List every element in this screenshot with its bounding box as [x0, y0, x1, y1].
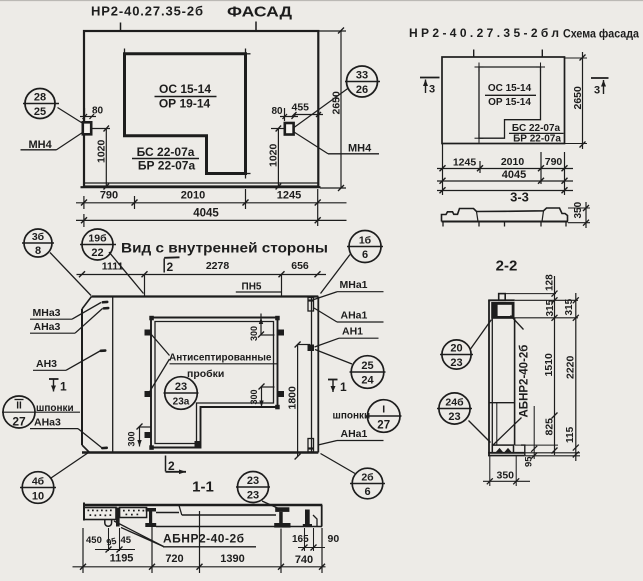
svg-text:шпонки: шпонки: [333, 411, 371, 422]
svg-text:24б: 24б: [445, 397, 464, 409]
svg-text:3-3: 3-3: [510, 190, 529, 205]
svg-text:825: 825: [544, 418, 556, 436]
svg-text:ОС 15-14: ОС 15-14: [159, 82, 211, 96]
svg-text:1-1: 1-1: [192, 479, 214, 496]
svg-text:23а: 23а: [173, 397, 190, 408]
svg-text:26: 26: [356, 84, 368, 96]
svg-text:1800: 1800: [287, 386, 299, 410]
svg-text:1020: 1020: [268, 143, 280, 167]
svg-text:ОС 15-14: ОС 15-14: [488, 83, 532, 94]
svg-text:1020: 1020: [96, 139, 108, 163]
svg-text:23: 23: [175, 381, 187, 393]
svg-text:315: 315: [545, 299, 556, 316]
svg-text:20: 20: [450, 343, 462, 355]
svg-text:1195: 1195: [110, 553, 134, 565]
svg-text:ФАСАД: ФАСАД: [227, 4, 292, 21]
svg-text:2650: 2650: [572, 86, 584, 110]
svg-text:720: 720: [165, 553, 183, 565]
svg-text:Антисептированные: Антисептированные: [169, 353, 272, 364]
svg-text:25: 25: [34, 106, 46, 118]
svg-text:1245: 1245: [277, 190, 301, 202]
svg-text:1: 1: [340, 380, 347, 394]
svg-text:2010: 2010: [181, 190, 205, 202]
svg-text:2: 2: [168, 459, 175, 473]
svg-text:АНа3: АНа3: [34, 417, 61, 429]
svg-text:4045: 4045: [193, 208, 219, 220]
svg-text:23: 23: [450, 357, 462, 369]
svg-text:2278: 2278: [206, 260, 230, 272]
svg-text:МН4: МН4: [348, 143, 372, 155]
svg-text:АН1: АН1: [342, 326, 363, 338]
svg-text:2220: 2220: [565, 355, 577, 379]
svg-text:6: 6: [362, 249, 368, 261]
svg-text:128: 128: [545, 274, 556, 291]
svg-text:656: 656: [291, 260, 309, 272]
svg-text:Вид с внутренней стороны: Вид с внутренней стороны: [121, 240, 328, 256]
svg-text:АНа1: АНа1: [341, 428, 368, 440]
svg-text:23: 23: [448, 411, 460, 423]
svg-text:пробки: пробки: [187, 368, 224, 380]
svg-text:1510: 1510: [543, 353, 555, 377]
svg-text:95: 95: [524, 456, 535, 467]
svg-text:300: 300: [249, 326, 259, 341]
svg-text:22: 22: [91, 247, 103, 259]
svg-text:БР 22-07а: БР 22-07а: [513, 133, 561, 144]
svg-text:ОР 15-14: ОР 15-14: [488, 97, 531, 108]
svg-text:95: 95: [105, 536, 117, 548]
svg-text:БР 22-07а: БР 22-07а: [138, 158, 196, 172]
svg-text:1245: 1245: [453, 157, 477, 169]
svg-text:6: 6: [364, 486, 370, 498]
svg-text:165: 165: [292, 534, 309, 545]
svg-text:115: 115: [565, 426, 576, 443]
svg-text:II: II: [16, 401, 22, 412]
svg-text:450: 450: [86, 535, 102, 546]
svg-text:300: 300: [127, 431, 137, 446]
svg-text:27: 27: [377, 420, 390, 432]
svg-text:1390: 1390: [220, 553, 244, 565]
svg-text:350: 350: [497, 470, 515, 482]
svg-text:8: 8: [35, 245, 41, 257]
svg-text:2-2: 2-2: [496, 258, 518, 275]
svg-text:АНа3: АНа3: [34, 321, 61, 333]
svg-text:МНа1: МНа1: [340, 279, 368, 291]
svg-text:3: 3: [594, 85, 600, 97]
svg-text:1б: 1б: [359, 235, 372, 247]
svg-text:27: 27: [12, 415, 26, 429]
svg-text:19б: 19б: [88, 233, 107, 245]
svg-text:350: 350: [573, 201, 584, 218]
svg-text:315: 315: [564, 298, 575, 315]
svg-text:НР2-40.27.35-2б: НР2-40.27.35-2б: [91, 4, 203, 19]
svg-text:1: 1: [60, 380, 67, 394]
svg-text:23: 23: [247, 475, 259, 487]
svg-text:23: 23: [247, 490, 259, 502]
svg-text:300: 300: [249, 389, 259, 404]
svg-text:25: 25: [361, 360, 373, 372]
svg-text:790: 790: [545, 156, 563, 168]
svg-text:2650: 2650: [331, 91, 343, 115]
svg-text:АБНР2-40-2б: АБНР2-40-2б: [519, 345, 531, 418]
svg-text:28: 28: [34, 92, 46, 104]
svg-text:2010: 2010: [501, 156, 525, 168]
svg-text:740: 740: [295, 554, 313, 566]
svg-text:90: 90: [328, 533, 340, 545]
svg-text:4б: 4б: [32, 476, 45, 488]
svg-text:455: 455: [292, 102, 310, 114]
svg-text:1111: 1111: [102, 261, 124, 273]
svg-text:МНа3: МНа3: [33, 307, 61, 319]
svg-text:АН3: АН3: [36, 358, 57, 370]
svg-text:2б: 2б: [361, 472, 374, 484]
svg-text:I: I: [382, 404, 385, 416]
svg-text:790: 790: [100, 190, 118, 202]
svg-text:10: 10: [32, 491, 44, 503]
svg-text:4045: 4045: [502, 169, 526, 181]
svg-text:80: 80: [272, 106, 284, 117]
svg-text:3: 3: [429, 84, 435, 96]
svg-text:33: 33: [356, 70, 368, 82]
svg-text:Схема фасада: Схема фасада: [563, 27, 639, 41]
svg-text:АНа1: АНа1: [341, 310, 368, 322]
svg-text:ПН5: ПН5: [242, 282, 262, 293]
svg-text:АБНР2-40-2б: АБНР2-40-2б: [163, 532, 245, 546]
svg-text:45: 45: [121, 535, 132, 546]
svg-text:ОР 19-14: ОР 19-14: [159, 96, 211, 110]
svg-text:2: 2: [167, 260, 174, 274]
svg-text:БС 22-07а: БС 22-07а: [137, 145, 195, 159]
svg-text:3б: 3б: [32, 231, 45, 243]
svg-text:24: 24: [361, 375, 374, 387]
svg-text:шпонки: шпонки: [36, 403, 74, 414]
